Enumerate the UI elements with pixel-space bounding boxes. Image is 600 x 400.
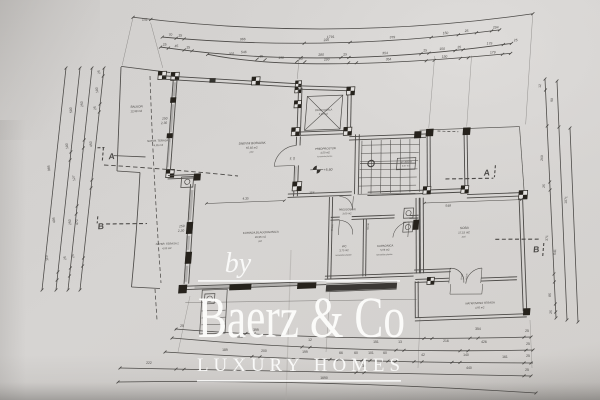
svg-text:B: B: [533, 244, 540, 254]
svg-text:25: 25: [525, 368, 529, 372]
svg-text:280: 280: [318, 53, 324, 57]
svg-text:154: 154: [309, 191, 315, 195]
svg-text:225: 225: [323, 38, 329, 42]
svg-text:3,75 m2: 3,75 m2: [339, 248, 349, 252]
svg-text:WC: WC: [342, 244, 347, 248]
svg-text:25: 25: [514, 38, 518, 42]
svg-text:190: 190: [278, 56, 284, 60]
svg-text:100: 100: [95, 87, 100, 93]
svg-text:OKNO DIZALA: OKNO DIZALA: [315, 107, 333, 112]
svg-text:4.35: 4.35: [242, 196, 249, 200]
svg-text:150: 150: [442, 55, 448, 59]
svg-text:140: 140: [463, 353, 469, 357]
svg-text:A: A: [108, 151, 115, 161]
svg-text:25: 25: [526, 342, 530, 346]
svg-text:150: 150: [443, 31, 449, 35]
svg-text:25: 25: [71, 254, 75, 258]
svg-text:966: 966: [240, 37, 246, 41]
svg-text:4,95 m2: 4,95 m2: [162, 246, 172, 250]
svg-text:379: 379: [389, 35, 395, 39]
svg-text:Baerz & Co: Baerz & Co: [198, 285, 405, 350]
svg-text:4,50 m2: 4,50 m2: [320, 150, 330, 154]
svg-text:2,30: 2,30: [161, 121, 168, 125]
svg-text:161: 161: [502, 355, 508, 359]
svg-text:142: 142: [142, 18, 148, 22]
svg-text:25: 25: [465, 29, 469, 33]
svg-text:250: 250: [68, 219, 73, 225]
svg-text:354: 354: [386, 57, 392, 61]
svg-text:1071: 1071: [564, 196, 568, 204]
svg-text:25: 25: [525, 329, 529, 333]
svg-text:354: 354: [382, 51, 388, 55]
svg-text:8,47 m2: 8,47 m2: [402, 165, 411, 167]
svg-text:12,98 m2: 12,98 m2: [130, 109, 142, 113]
svg-text:LUXURY HOMES: LUXURY HOMES: [197, 355, 405, 376]
svg-text:25: 25: [63, 256, 67, 260]
svg-text:25: 25: [259, 54, 263, 58]
svg-text:500: 500: [69, 107, 74, 113]
svg-text:3,60 m2: 3,60 m2: [342, 212, 352, 215]
svg-text:25: 25: [423, 48, 427, 52]
svg-text:26,95 m2: 26,95 m2: [255, 235, 267, 239]
svg-text:440: 440: [466, 366, 472, 370]
svg-text:371: 371: [545, 235, 549, 241]
svg-text:25: 25: [97, 70, 101, 74]
svg-text:PREDSOBLJE: PREDSOBLJE: [339, 207, 357, 212]
svg-text:25: 25: [526, 354, 530, 358]
svg-text:200: 200: [324, 57, 330, 61]
svg-text:331: 331: [229, 52, 235, 56]
svg-text:70: 70: [168, 33, 172, 37]
svg-text:25: 25: [299, 57, 303, 61]
svg-text:216: 216: [443, 339, 449, 343]
svg-text:426: 426: [481, 340, 487, 344]
svg-text:25: 25: [178, 34, 182, 38]
svg-text:204: 204: [493, 25, 499, 29]
svg-text:85: 85: [548, 293, 552, 297]
svg-text:KUPAONICA: KUPAONICA: [377, 243, 394, 248]
svg-text:25: 25: [93, 106, 97, 110]
svg-text:5,06 m2: 5,06 m2: [380, 248, 390, 252]
svg-text:541: 541: [553, 249, 557, 255]
svg-text:25: 25: [163, 43, 167, 47]
svg-text:55,92 m2: 55,92 m2: [246, 145, 258, 149]
svg-text:45: 45: [174, 44, 178, 48]
svg-text:985: 985: [47, 165, 52, 171]
svg-text:STUBIŠTE: STUBIŠTE: [401, 161, 413, 164]
svg-text:A: A: [483, 167, 490, 177]
svg-text:119: 119: [45, 255, 50, 261]
svg-text:12: 12: [538, 84, 542, 88]
svg-text:222: 222: [146, 361, 152, 365]
svg-text:PREDPROSTOR: PREDPROSTOR: [315, 146, 336, 151]
svg-text:25: 25: [343, 52, 347, 56]
svg-text:25: 25: [186, 45, 190, 49]
svg-text:260: 260: [540, 155, 544, 161]
svg-text:100: 100: [65, 143, 70, 149]
svg-text:25: 25: [542, 184, 546, 188]
svg-text:250: 250: [80, 101, 85, 107]
svg-text:470: 470: [75, 219, 80, 225]
svg-text:179: 179: [486, 41, 492, 45]
svg-text:90: 90: [550, 98, 554, 102]
svg-text:1690: 1690: [320, 376, 328, 380]
svg-text:4,95 m2: 4,95 m2: [154, 143, 164, 147]
svg-text:179: 179: [490, 50, 496, 54]
svg-text:546: 546: [241, 50, 247, 54]
svg-text:450: 450: [89, 141, 94, 147]
svg-text:B: B: [97, 221, 104, 231]
svg-text:25: 25: [549, 310, 553, 314]
svg-text:by: by: [225, 248, 252, 279]
svg-text:354: 354: [475, 327, 481, 331]
svg-text:150: 150: [439, 47, 445, 51]
svg-text:4,60 m2: 4,60 m2: [475, 305, 485, 309]
svg-text:keramicke plocice: keramicke plocice: [317, 155, 332, 159]
svg-text:+5,60: +5,60: [324, 168, 333, 172]
svg-text:17,15 m2: 17,15 m2: [458, 230, 470, 234]
svg-text:127: 127: [72, 175, 77, 181]
svg-text:2,30: 2,30: [178, 229, 185, 233]
svg-text:199: 199: [302, 350, 308, 354]
svg-text:25: 25: [457, 45, 461, 49]
svg-text:548: 548: [445, 204, 451, 208]
svg-text:3,60 m2: 3,60 m2: [319, 113, 329, 116]
svg-text:42: 42: [421, 353, 425, 357]
svg-text:495: 495: [52, 217, 57, 223]
